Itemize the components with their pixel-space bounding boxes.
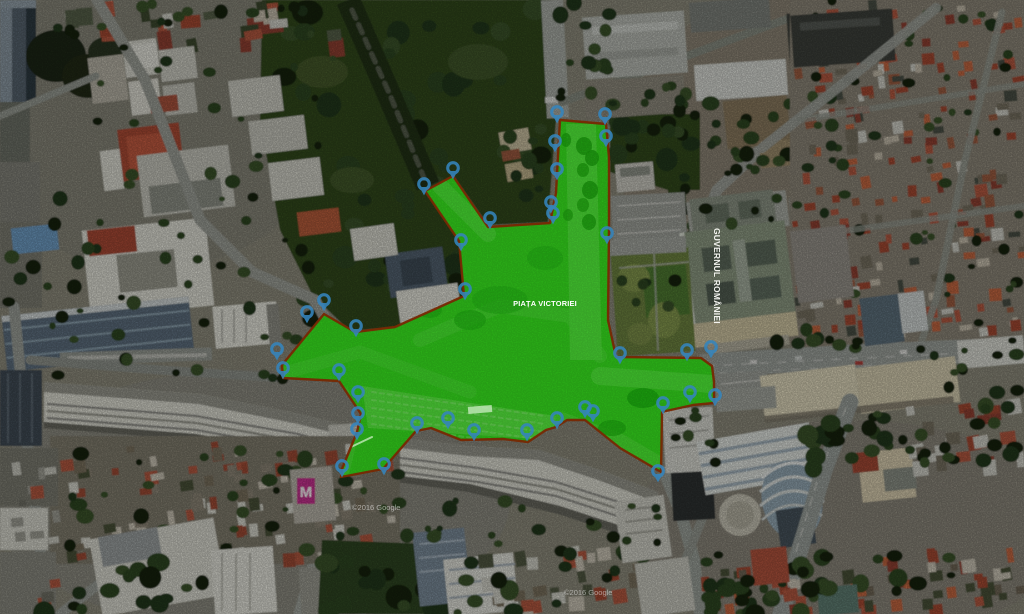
svg-text:GUVERNUL ROMÂNIEI: GUVERNUL ROMÂNIEI <box>712 228 723 324</box>
svg-text:©2016 Google: ©2016 Google <box>352 503 400 512</box>
svg-text:©2016 Google: ©2016 Google <box>564 588 612 597</box>
svg-text:M: M <box>300 484 313 501</box>
svg-text:PIAȚA VICTORIEI: PIAȚA VICTORIEI <box>513 299 577 308</box>
